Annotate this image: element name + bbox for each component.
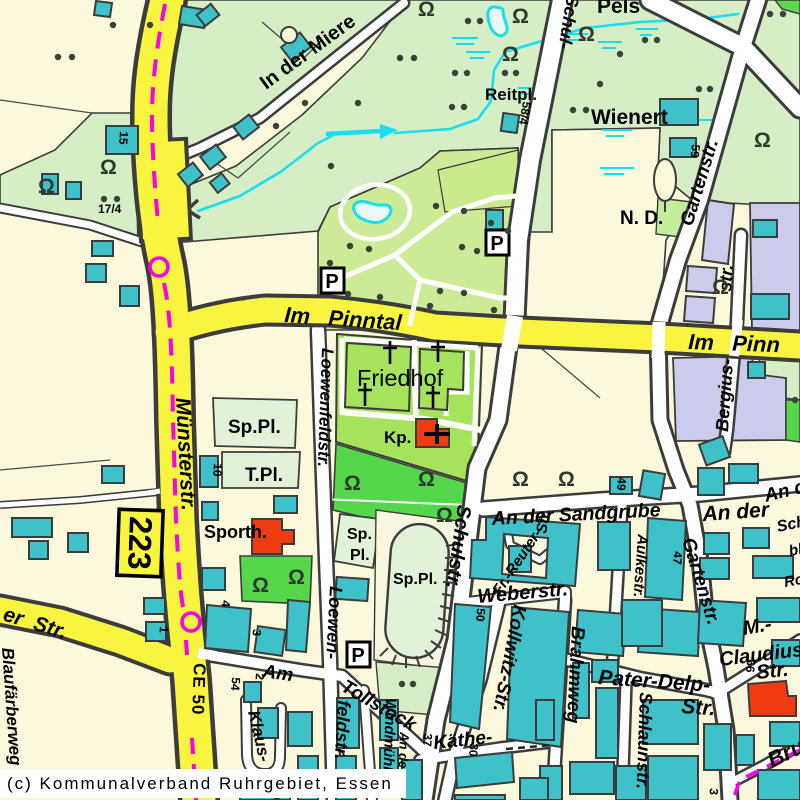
svg-text:Ω: Ω [512,5,529,28]
svg-text:Loewen-: Loewen- [322,586,346,660]
svg-text:Pl.: Pl. [350,547,370,564]
svg-text:P: P [490,233,503,255]
svg-text:30: 30 [466,743,481,758]
svg-text:3: 3 [250,629,264,637]
svg-text:49: 49 [614,477,629,492]
svg-text:Ω: Ω [512,468,529,491]
svg-text:Kp.: Kp. [384,428,411,447]
svg-text:3: 3 [707,788,721,796]
svg-text:59: 59 [688,144,703,159]
svg-text:Ω: Ω [712,276,729,299]
svg-text:Wienert: Wienert [591,106,668,129]
svg-text:bli: bli [787,539,800,559]
svg-text:Sp.Pl.: Sp.Pl. [228,417,281,438]
svg-text:10: 10 [210,463,225,478]
svg-text:Ω: Ω [38,175,55,198]
svg-text:P: P [325,271,338,293]
svg-text:Ω: Ω [344,472,361,495]
svg-text:CE 50: CE 50 [188,663,209,716]
svg-text:Ω: Ω [436,504,453,527]
svg-text:Ro: Ro [783,571,800,591]
svg-text:Ω: Ω [418,0,435,21]
svg-text:feldstr.: feldstr. [331,700,354,760]
svg-text:N. D.: N. D. [620,208,663,229]
svg-text:Ω: Ω [502,43,519,66]
svg-text:Schlaunstr.: Schlaunstr. [633,692,656,790]
svg-text:Ω: Ω [288,566,305,589]
svg-text:Ω: Ω [754,129,771,152]
svg-text:An de: An de [396,731,412,769]
svg-text:50: 50 [473,608,488,623]
svg-text:1: 1 [157,626,171,634]
svg-text:54: 54 [228,677,243,692]
svg-text:47: 47 [670,551,685,566]
svg-text:Sporth.: Sporth. [204,522,267,542]
svg-text:Ω: Ω [558,468,575,491]
svg-text:37: 37 [420,733,435,748]
svg-text:17/4: 17/4 [98,202,122,216]
svg-text:Ω: Ω [418,468,435,491]
svg-text:Ω: Ω [100,156,117,179]
svg-text:P: P [351,645,364,667]
svg-text:2: 2 [253,673,267,681]
svg-text:Pels: Pels [597,0,640,18]
svg-text:223: 223 [121,516,159,571]
svg-text:4: 4 [219,600,233,608]
svg-text:Ω: Ω [578,23,595,46]
svg-text:(c) Kommunalverband Ruhrgebiet: (c) Kommunalverband Ruhrgebiet, Essen [7,774,393,793]
svg-text:Sp.: Sp. [347,526,372,543]
svg-text:15: 15 [116,131,131,146]
svg-text:66: 66 [743,659,758,674]
svg-text:T.Pl.: T.Pl. [245,465,283,486]
svg-text:Im Pinn: Im Pinn [688,329,781,357]
svg-text:An der: An der [701,498,772,526]
svg-text:Str.: Str. [755,659,789,684]
svg-text:Sp.Pl.: Sp.Pl. [393,571,437,588]
svg-text:Friedhof: Friedhof [357,365,444,391]
svg-text:Ω: Ω [252,574,269,597]
svg-text:Str.: Str. [681,695,716,720]
